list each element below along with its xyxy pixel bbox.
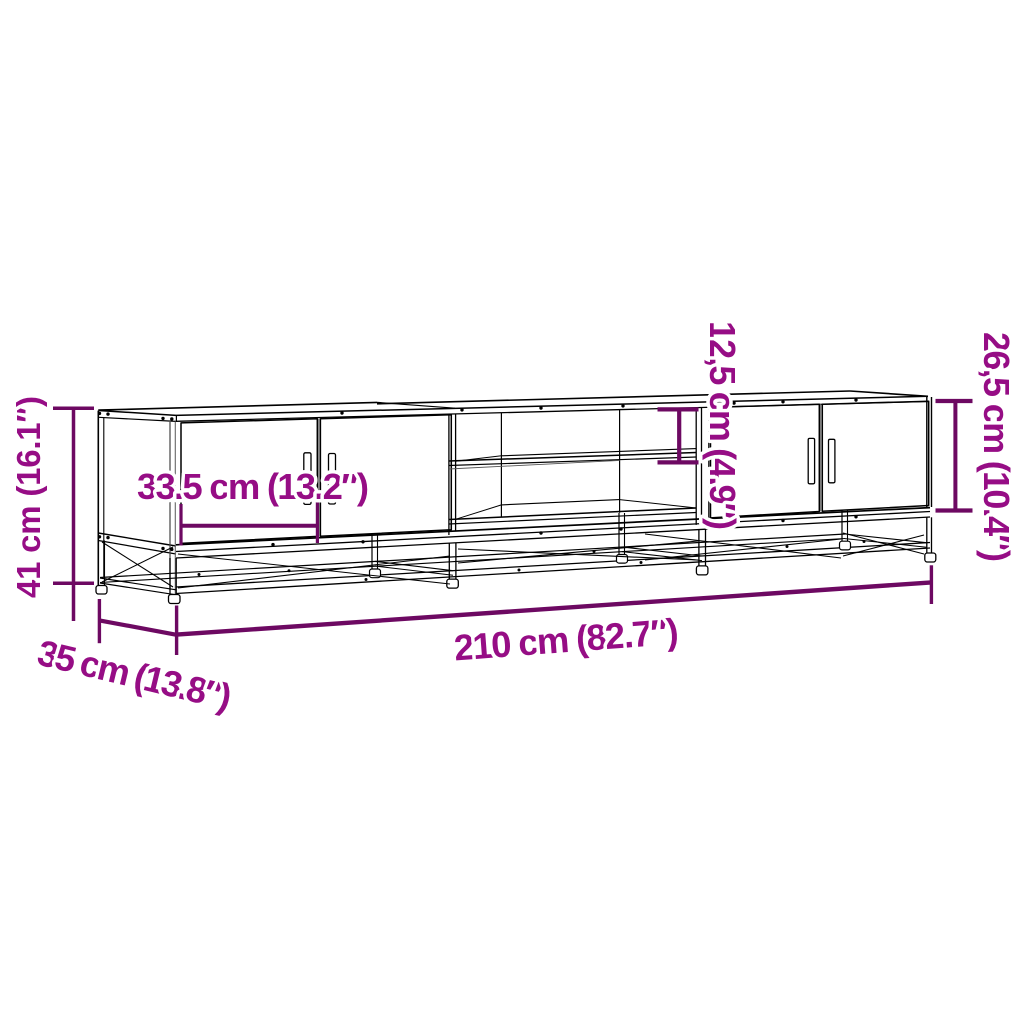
- svg-text:210 cm (82.7″): 210 cm (82.7″): [453, 611, 680, 669]
- svg-text:35 cm (13.8″): 35 cm (13.8″): [34, 632, 236, 718]
- svg-text:26,5 cm (10.4″): 26,5 cm (10.4″): [976, 332, 1017, 562]
- svg-text:33.5 cm (13.2″): 33.5 cm (13.2″): [137, 466, 369, 507]
- svg-text:41 cm (16.1″): 41 cm (16.1″): [10, 396, 47, 598]
- svg-text:12,5 cm (4.9″): 12,5 cm (4.9″): [702, 321, 743, 530]
